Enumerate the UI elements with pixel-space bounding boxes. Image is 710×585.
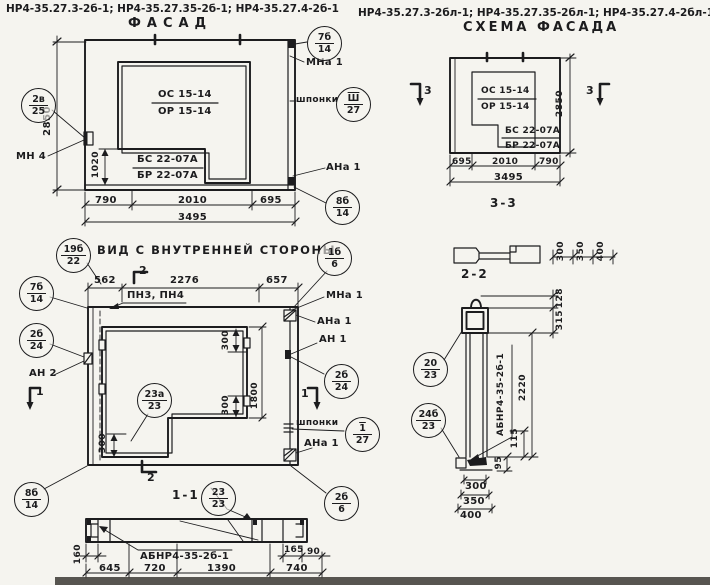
header-right-codes: НР4-35.27.3-2бл-1; НР4-35.27.35-2бл-1; Н…	[358, 7, 710, 19]
callout-num: 24б	[416, 410, 442, 421]
facade-dim-total: 3495	[178, 212, 207, 223]
section-2-2-dim-400: 400	[460, 510, 482, 521]
scheme-dim-total: 3495	[494, 172, 523, 183]
scheme-panel-mark-top: БС 22-07А	[505, 126, 560, 136]
callout-num: 19б	[61, 245, 87, 256]
inner-anchor-an2-label: АН 2	[29, 368, 57, 379]
inner-dim-657: 657	[266, 275, 288, 286]
section-2-2-dim-315: 315	[555, 310, 565, 330]
facade-window-mark-bottom: ОР 15-14	[158, 106, 212, 117]
inner-anchor-mna1-label: МНа 1	[326, 290, 363, 301]
inner-dim-562: 562	[94, 275, 116, 286]
inner-section1-mark-right: 1	[301, 387, 309, 400]
scheme-window-mark-top: ОС 15-14	[481, 86, 530, 96]
inner-dim-win-height: 1800	[250, 382, 260, 409]
section-1-1-part-label: АБНР4-35-2б-1	[140, 551, 229, 562]
callout-num: 2б	[332, 371, 351, 382]
section-1-1-dim-740: 740	[286, 563, 308, 574]
section-2-2-dim-95: 95	[494, 456, 504, 470]
inner-callout-bottom-right: 2б 6	[324, 486, 359, 521]
callout-num: 1	[353, 424, 372, 435]
inner-section1-mark-left: 1	[36, 385, 44, 398]
facade-dim-695: 695	[260, 195, 282, 206]
callout-num: 23а	[142, 390, 168, 401]
callout-num: 8б	[333, 197, 352, 208]
section-3-3-dim-400: 400	[596, 241, 606, 261]
scheme-dim-height: 2850	[555, 90, 565, 117]
facade-callout-top-right: 7б 14	[307, 26, 342, 61]
inner-callout-window: 23а 23	[137, 383, 172, 418]
inner-section2-mark-top: 2	[139, 264, 147, 277]
blueprint-sheet: НР4-35.27.3-2б-1; НР4-35.27.35-2б-1; НР4…	[0, 0, 710, 585]
inner-view-linework	[27, 263, 345, 493]
facade-dim-2010: 2010	[178, 195, 207, 206]
inner-callout-keys: 1 27	[345, 417, 380, 452]
callout-num: 2б	[27, 330, 46, 341]
inner-callout-bottom-left: 8б 14	[14, 482, 49, 517]
section-1-1-dim-645: 645	[99, 563, 121, 574]
inner-view-title: ВИД С ВНУТРЕННЕЙ СТОРОНЫ	[97, 243, 336, 257]
section-1-1-callout: 23 23	[201, 481, 236, 516]
inner-dim-2276: 2276	[170, 275, 199, 286]
callout-num: 20	[421, 359, 440, 370]
inner-callout-left-upper: 7б 14	[19, 276, 54, 311]
section-1-1-dim-90: 90	[307, 547, 320, 557]
section-2-2-callout-lower: 24б 23	[411, 403, 446, 438]
callout-sheet: 27	[347, 105, 360, 116]
facade-callout-bottom-right: 8б 14	[325, 190, 360, 225]
callout-num: 1б	[325, 248, 344, 259]
section-2-2-part-label: АБНР4-35-2б-1	[496, 340, 506, 436]
callout-num: 7б	[315, 33, 334, 44]
inner-dim-leg: 300	[98, 433, 108, 453]
inner-dim-win-top: 300	[221, 330, 231, 350]
callout-sheet: 6	[331, 259, 338, 270]
inner-callout-left-lower: 2б 24	[19, 323, 54, 358]
callout-num: Ш	[344, 94, 363, 105]
facade-anchor-ana1-label: АНа 1	[326, 162, 361, 173]
facade-dim-790: 790	[95, 195, 117, 206]
callout-sheet: 24	[335, 382, 348, 393]
section-3-3-dim-300: 300	[556, 241, 566, 261]
section-2-2-dim-2220: 2220	[518, 374, 528, 401]
inner-section2-mark-bottom: 2	[147, 471, 155, 484]
facade-dim-sill: 1020	[91, 151, 101, 178]
callout-sheet: 14	[318, 44, 331, 55]
callout-sheet: 14	[30, 294, 43, 305]
callout-sheet: 22	[67, 256, 80, 267]
inner-rails-label: ПН3, ПН4	[127, 290, 184, 301]
callout-sheet: 24	[30, 341, 43, 352]
scheme-window-mark-bottom: ОР 15-14	[481, 102, 530, 112]
scheme-section-mark-right: 3	[586, 84, 594, 97]
section-2-2-dim-128: 128	[555, 288, 565, 308]
inner-callout-top-left: 19б 22	[56, 238, 91, 273]
callout-sheet: 14	[336, 208, 349, 219]
callout-sheet: 23	[422, 421, 435, 432]
inner-keys-label: шпонки	[296, 418, 338, 428]
callout-sheet: 23	[212, 499, 225, 510]
callout-sheet: 23	[424, 370, 437, 381]
scheme-dim-695: 695	[452, 157, 472, 167]
section-1-1-dim-720: 720	[144, 563, 166, 574]
facade-panel-mark-bottom: БР 22-07А	[137, 170, 198, 181]
facade-window-mark-top: ОС 15-14	[158, 89, 212, 100]
callout-num: 8б	[22, 489, 41, 500]
scheme-panel-mark-bottom: БР 22-07А	[505, 141, 560, 151]
header-left-codes: НР4-35.27.3-2б-1; НР4-35.27.35-2б-1; НР4…	[6, 3, 339, 15]
inner-callout-right: 2б 24	[324, 364, 359, 399]
facade-panel-mark-top: БС 22-07А	[137, 154, 198, 165]
callout-num: 23	[209, 488, 228, 499]
inner-anchor-an1-label: АН 1	[319, 334, 347, 345]
scheme-section-mark-left: 3	[424, 84, 432, 97]
facade-title: ФАСАД	[128, 16, 212, 31]
callout-num: 2в	[29, 95, 48, 106]
callout-sheet: 27	[356, 435, 369, 446]
section-1-1-title: 1-1	[172, 488, 200, 502]
scan-artifact-band	[55, 577, 710, 585]
callout-sheet: 23	[148, 401, 161, 412]
section-2-2-dim-115: 115	[510, 428, 520, 448]
section-2-2-dim-300: 300	[465, 481, 487, 492]
section-2-2-dim-350: 350	[463, 496, 485, 507]
section-1-1-dim-1390: 1390	[207, 563, 236, 574]
section-1-1-dim-165: 165	[284, 545, 304, 555]
inner-callout-top-right: 1б 6	[317, 241, 352, 276]
callout-sheet: 25	[32, 106, 45, 117]
facade-callout-keys: Ш 27	[336, 87, 371, 122]
scheme-dim-2010: 2010	[492, 157, 518, 167]
section-1-1-dim-160: 160	[73, 544, 83, 564]
callout-sheet: 6	[338, 504, 345, 515]
facade-anchor-mn4-label: МН 4	[16, 151, 46, 162]
section-3-3-dim-350: 350	[576, 241, 586, 261]
facade-keys-label: шпонки	[296, 95, 338, 105]
scheme-title: СХЕМА ФАСАДА	[463, 20, 619, 35]
inner-anchor-ana1-bottom-label: АНа 1	[304, 438, 339, 449]
callout-sheet: 14	[25, 500, 38, 511]
scheme-dim-790: 790	[539, 157, 559, 167]
section-2-2-callout-upper: 20 23	[413, 352, 448, 387]
section-3-3-title: 3-3	[490, 196, 518, 210]
facade-callout-mn: 2в 25	[21, 88, 56, 123]
section-2-2-title: 2-2	[461, 267, 489, 281]
callout-num: 2б	[332, 493, 351, 504]
inner-anchor-ana1-top-label: АНа 1	[317, 316, 352, 327]
inner-dim-win-mid: 300	[221, 395, 231, 415]
callout-num: 7б	[27, 283, 46, 294]
